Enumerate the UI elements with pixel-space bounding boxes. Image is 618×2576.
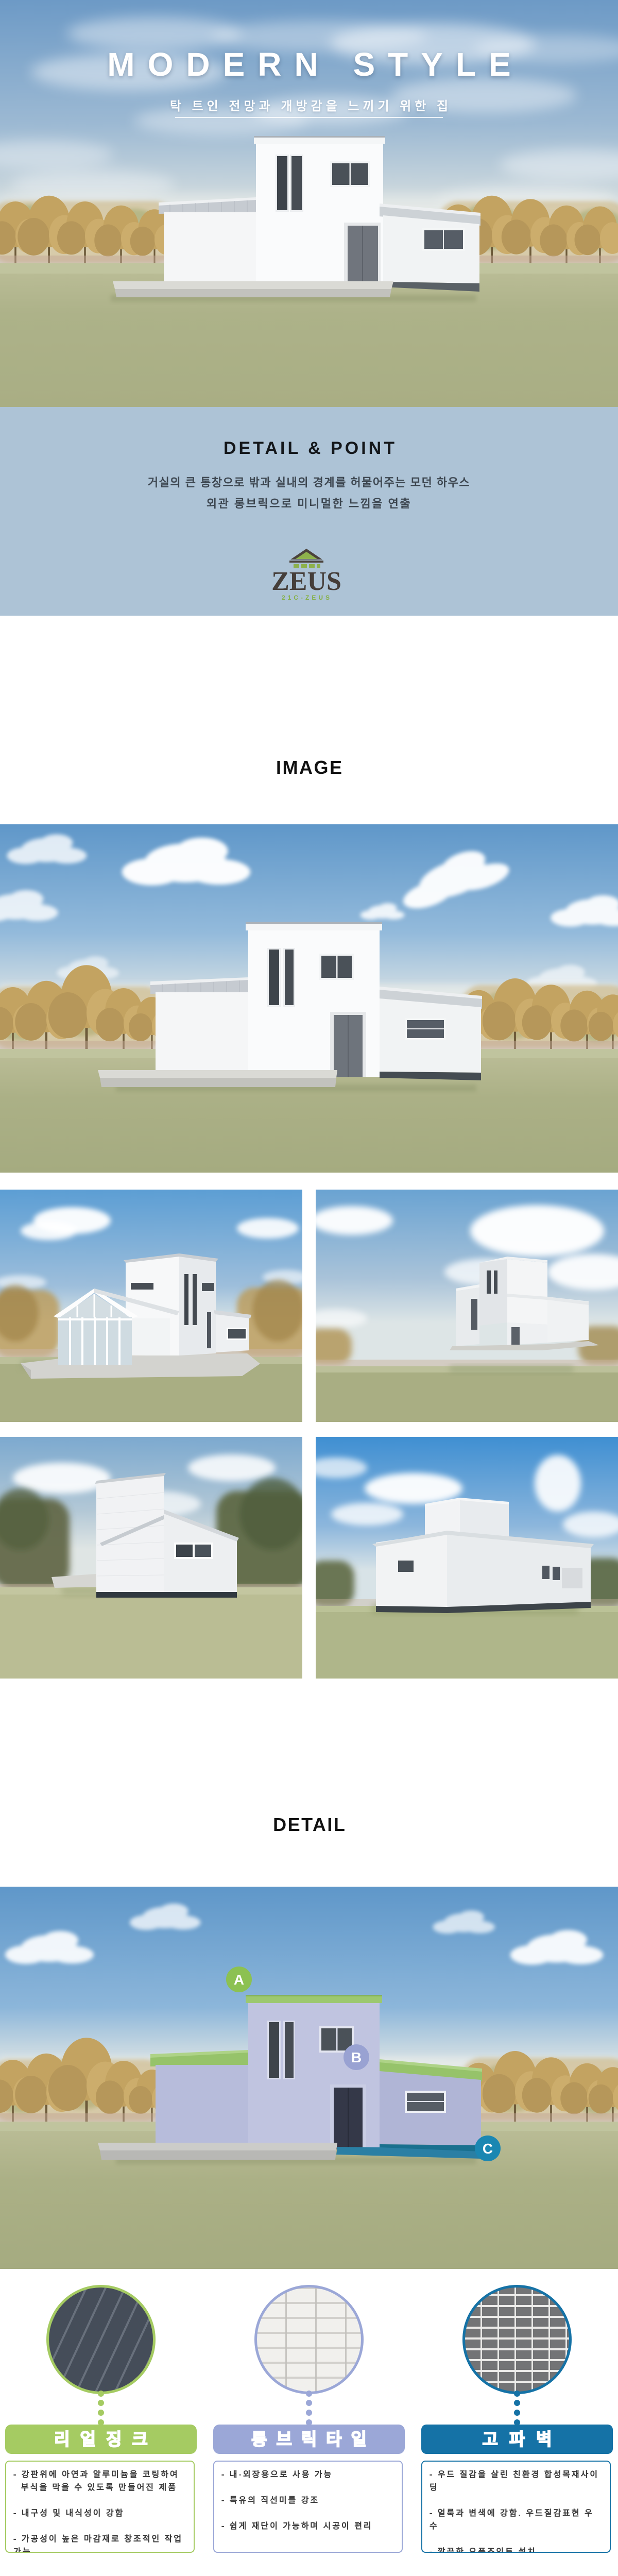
svg-text:B: B <box>351 2049 362 2065</box>
svg-text:21C-ZEUS: 21C-ZEUS <box>282 594 332 601</box>
svg-text:C: C <box>483 2141 493 2157</box>
svg-text:ZEUS: ZEUS <box>271 567 341 596</box>
svg-text:A: A <box>234 1972 244 1988</box>
